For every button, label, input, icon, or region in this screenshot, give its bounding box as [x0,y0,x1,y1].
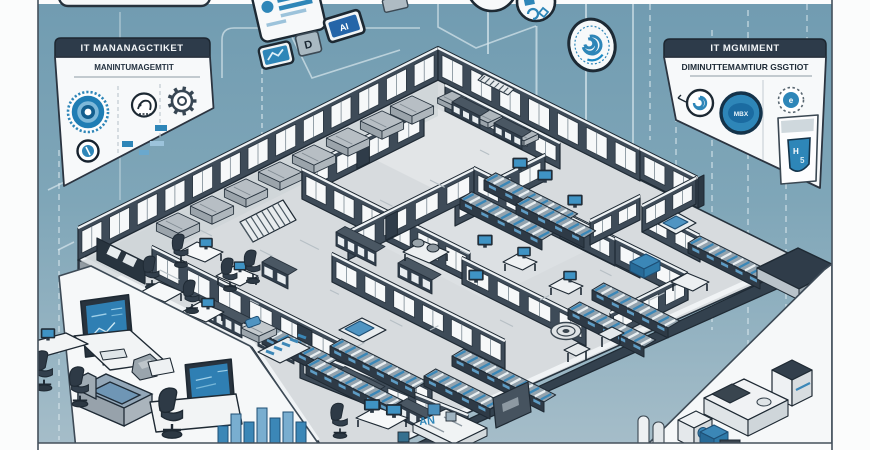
svg-text:IT MANANAGCTIKET: IT MANANAGCTIKET [81,43,184,54]
svg-text:e: e [789,96,794,105]
svg-text:5: 5 [800,156,805,165]
svg-text:H: H [793,147,799,156]
svg-text:AN: AN [419,415,436,429]
svg-text:IT MGMIMENT: IT MGMIMENT [710,43,779,54]
svg-text:MBX: MBX [734,111,749,118]
svg-text:MANINTUMAGEMTIT: MANINTUMAGEMTIT [94,63,174,72]
svg-text:DIMINUTTEMAMTIUR GSGTIOT: DIMINUTTEMAMTIUR GSGTIOT [681,62,809,72]
